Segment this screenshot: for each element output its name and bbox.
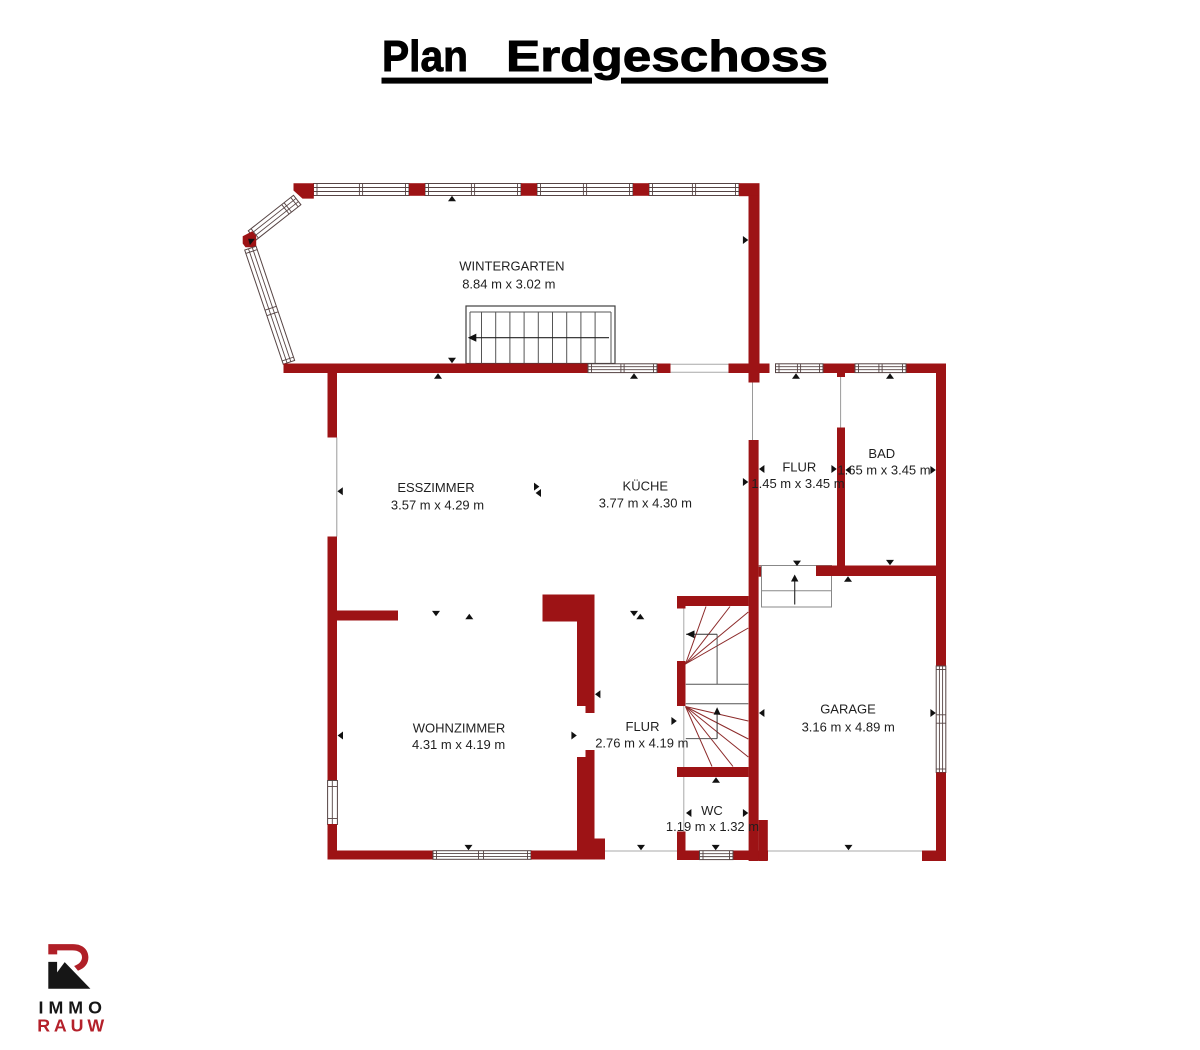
svg-text:8.84 m x 3.02 m: 8.84 m x 3.02 m [462, 276, 555, 291]
svg-text:WINTERGARTEN: WINTERGARTEN [459, 258, 564, 273]
svg-text:BAD: BAD [868, 446, 895, 461]
svg-text:FLUR: FLUR [626, 719, 660, 734]
svg-text:1.65 m x 3.45 m: 1.65 m x 3.45 m [837, 462, 930, 477]
svg-text:3.57 m x 4.29 m: 3.57 m x 4.29 m [391, 498, 484, 513]
svg-text:1.19 m x 1.32 m: 1.19 m x 1.32 m [666, 819, 759, 834]
svg-text:3.77 m x 4.30 m: 3.77 m x 4.30 m [599, 496, 692, 511]
svg-text:2.76 m x 4.19 m: 2.76 m x 4.19 m [595, 736, 688, 751]
svg-text:IMMO: IMMO [39, 997, 107, 1017]
svg-text:Plan: Plan [382, 32, 468, 81]
svg-text:1.45 m x 3.45 m: 1.45 m x 3.45 m [751, 476, 844, 491]
svg-text:KÜCHE: KÜCHE [623, 478, 669, 493]
svg-text:FLUR: FLUR [782, 460, 816, 475]
svg-text:WOHNZIMMER: WOHNZIMMER [413, 721, 505, 736]
svg-text:3.16 m x 4.89 m: 3.16 m x 4.89 m [802, 719, 895, 734]
svg-text:4.31 m x 4.19 m: 4.31 m x 4.19 m [412, 737, 505, 752]
svg-text:RAUW: RAUW [37, 1015, 108, 1035]
svg-text:Erdgeschoss: Erdgeschoss [506, 32, 828, 81]
svg-text:WC: WC [701, 803, 723, 818]
svg-text:GARAGE: GARAGE [820, 701, 876, 716]
svg-text:ESSZIMMER: ESSZIMMER [397, 480, 474, 495]
